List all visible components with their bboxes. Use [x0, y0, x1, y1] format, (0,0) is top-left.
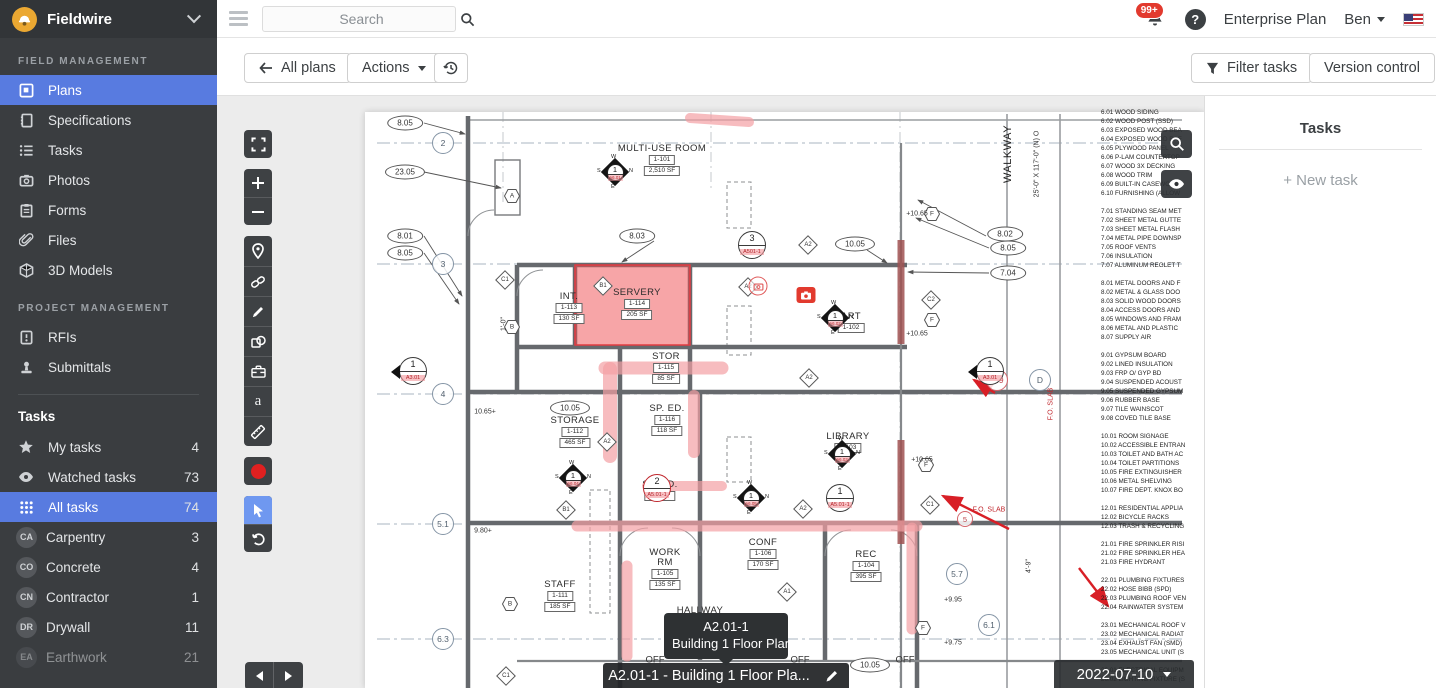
- plan-toolbar: All plans Actions Filter tasks Version c…: [217, 38, 1436, 96]
- text-tool-button[interactable]: a: [244, 386, 272, 416]
- photo-marker-outline-icon[interactable]: [749, 277, 768, 296]
- sidebar-item-forms[interactable]: Forms: [0, 195, 217, 225]
- task-count: 73: [184, 470, 199, 485]
- star-icon: [18, 439, 34, 455]
- category-badge: CN: [16, 587, 37, 608]
- keynote-line: 21.03 FIRE HYDRANT: [1101, 558, 1204, 567]
- keynote-line: 23.01 MECHANICAL ROOF V: [1101, 621, 1204, 630]
- keynote-line: 7.02 SHEET METAL GUTTE: [1101, 216, 1204, 225]
- plan-annotation-text: +10.65: [906, 331, 928, 338]
- task-count: 4: [191, 440, 199, 455]
- keynote-line: 10.02 ACCESSIBLE ENTRAN: [1101, 441, 1204, 450]
- keynote-line: [1101, 270, 1204, 279]
- tooltip-plan-number: A2.01-1: [672, 618, 780, 635]
- logo-row[interactable]: Fieldwire: [0, 0, 217, 38]
- plan-annotation-text: 1'-0": [501, 317, 508, 331]
- plan-tool-stack: a: [244, 130, 272, 563]
- sidebar-item-rfis[interactable]: RFIs: [0, 322, 217, 352]
- toolbox-button[interactable]: [244, 356, 272, 386]
- actions-label: Actions: [362, 60, 410, 76]
- sheet-navigation: [245, 662, 303, 688]
- pen-tool-button[interactable]: [244, 296, 272, 326]
- user-name: Ben: [1344, 11, 1371, 28]
- version-date-label: 2022-07-10: [1077, 666, 1154, 683]
- keynote-line: 12.03 TRASH & RECYCLING: [1101, 522, 1204, 531]
- fullscreen-button[interactable]: [244, 130, 272, 158]
- sidebar-item-label: Earthwork: [46, 650, 107, 665]
- task-count: 4: [191, 560, 199, 575]
- sidebar-item-label: Contractor: [46, 590, 109, 605]
- submittals-icon: [18, 359, 34, 375]
- sidebar-item-label: Carpentry: [46, 530, 105, 545]
- keynote-line: 23.05 MECHANICAL UNIT (S: [1101, 648, 1204, 657]
- all-plans-button[interactable]: All plans: [244, 53, 351, 83]
- task-count: 1: [191, 590, 199, 605]
- tasks-panel-title: Tasks: [1205, 120, 1436, 137]
- keynote-line: [1101, 531, 1204, 540]
- sidebar-item-label: Drywall: [46, 620, 90, 635]
- plan-annotation-text: 4'-9": [1026, 559, 1033, 573]
- keynote-line: [1101, 567, 1204, 576]
- project-management-label: PROJECT MANAGEMENT: [0, 285, 217, 322]
- keynote-line: 9.06 RUBBER BASE: [1101, 396, 1204, 405]
- keynote-line: 12.01 RESIDENTIAL APPLIA: [1101, 504, 1204, 513]
- sidebar-item-plans[interactable]: Plans: [0, 75, 217, 105]
- pin-tool-button[interactable]: [244, 236, 272, 266]
- keynote-line: 8.02 METAL & GLASS DOO: [1101, 288, 1204, 297]
- version-date-dropdown[interactable]: 2022-07-10: [1054, 660, 1194, 688]
- plan-annotation-text: OFF: [896, 655, 915, 666]
- keynote-line: 7.04 METAL PIPE DOWNSP: [1101, 234, 1204, 243]
- 3d-models-icon: [18, 262, 34, 278]
- sidebar-item-all-tasks[interactable]: All tasks 74: [0, 492, 217, 522]
- sidebar-item-label: Files: [48, 233, 77, 248]
- keynote-line: 21.02 FIRE SPRINKLER HEA: [1101, 549, 1204, 558]
- next-sheet-button[interactable]: [274, 662, 303, 688]
- undo-button[interactable]: [244, 524, 272, 552]
- search-plan-button[interactable]: [1161, 130, 1192, 158]
- sidebar-item-label: Photos: [48, 173, 90, 188]
- plan-annotation-text: 25'-0" X 117'-0" (N) O: [1034, 131, 1041, 198]
- photos-icon: [18, 172, 34, 188]
- hamburger-menu-icon[interactable]: [229, 11, 248, 26]
- plan-annotation-text: F.O. SLAB: [973, 507, 1006, 514]
- sidebar: Fieldwire FIELD MANAGEMENT Plans Specifi…: [0, 0, 217, 688]
- plan-annotation-text: +10.65: [911, 457, 933, 464]
- version-history-button[interactable]: [434, 53, 468, 83]
- sidebar-item-label: All tasks: [48, 500, 98, 515]
- tasks-panel-divider: [1219, 149, 1422, 150]
- keynote-line: 8.06 METAL AND PLASTIC: [1101, 324, 1204, 333]
- filter-tasks-label: Filter tasks: [1227, 60, 1297, 76]
- sidebar-item-3d-models[interactable]: 3D Models: [0, 255, 217, 285]
- us-flag-icon[interactable]: [1403, 13, 1424, 26]
- zoom-out-button[interactable]: [244, 197, 272, 225]
- zoom-in-button[interactable]: [244, 169, 272, 197]
- visibility-button[interactable]: [1161, 170, 1192, 198]
- keynote-line: 10.06 METAL SHELVING: [1101, 477, 1204, 486]
- sidebar-item-label: RFIs: [48, 330, 77, 345]
- keynote-line: 23.04 EXHAUST FAN (SMD): [1101, 639, 1204, 648]
- all-plans-label: All plans: [281, 60, 336, 76]
- filter-tasks-button[interactable]: Filter tasks: [1191, 53, 1312, 83]
- tooltip-plan-name: Building 1 Floor Plan: [672, 635, 780, 652]
- plan-view-controls: [1161, 130, 1192, 210]
- sidebar-item-watched-tasks[interactable]: Watched tasks 73: [0, 462, 217, 492]
- select-tool-button[interactable]: [244, 496, 272, 524]
- new-task-button[interactable]: + New task: [1205, 172, 1436, 189]
- top-bar: 99+ ? Enterprise Plan Ben: [217, 0, 1436, 38]
- keynote-line: 21.01 FIRE SPRINKLER RISI: [1101, 540, 1204, 549]
- plan-annotation-text: F.O. SLAB: [1048, 388, 1055, 421]
- keynote-line: [1101, 423, 1204, 432]
- sidebar-item-label: Specifications: [48, 113, 131, 128]
- markup-tools-group: a: [244, 236, 272, 446]
- plan-annotation-text: 10.65+: [474, 409, 496, 416]
- keynote-line: 10.05 FIRE EXTINGUISHER: [1101, 468, 1204, 477]
- tasks-section-label: Tasks: [0, 395, 217, 432]
- keynote-line: 6.02 WOOD POST (SSD): [1101, 117, 1204, 126]
- keynote-line: 10.01 ROOM SIGNAGE: [1101, 432, 1204, 441]
- keynote-line: 7.07 ALUMINUM REGLET T: [1101, 261, 1204, 270]
- measure-tool-button[interactable]: [244, 416, 272, 446]
- task-count: 3: [191, 530, 199, 545]
- sidebar-item-submittals[interactable]: Submittals: [0, 352, 217, 382]
- forms-icon: [18, 202, 34, 218]
- tasks-icon: [18, 142, 34, 158]
- keynote-line: 9.02 LINED INSULATION: [1101, 360, 1204, 369]
- plan-texts-layer: +10.65+10.65+10.6510.65+9.80++9.95+9.751…: [217, 96, 1204, 688]
- keynote-line: 9.07 TILE WAINSCOT: [1101, 405, 1204, 414]
- plan-viewer[interactable]: MULTI-USE ROOM 1-101 2,510 SF INT. 1-113…: [217, 96, 1204, 688]
- keynote-line: 9.01 GYPSUM BOARD: [1101, 351, 1204, 360]
- chevron-down-icon: [418, 66, 426, 71]
- keynote-line: 9.05 SUSPENDED GYPSUM: [1101, 387, 1204, 396]
- keynote-line: 10.03 TOILET AND BATH AC: [1101, 450, 1204, 459]
- plan-annotation-text: +9.75: [944, 640, 962, 647]
- brand-name: Fieldwire: [47, 11, 189, 28]
- keynote-line: 9.03 FRP O/ GYP BD: [1101, 369, 1204, 378]
- keynote-line: 12.02 BICYCLE RACKS: [1101, 513, 1204, 522]
- sidebar-item-tasks[interactable]: Tasks: [0, 135, 217, 165]
- category-badge: EA: [16, 647, 37, 668]
- keynote-line: 10.07 FIRE DEPT. KNOX BO: [1101, 486, 1204, 495]
- fieldwire-logo-icon: [12, 7, 37, 32]
- sidebar-item-contractor[interactable]: CN Contractor 1: [0, 582, 217, 612]
- sidebar-item-label: 3D Models: [48, 263, 113, 278]
- keynote-line: 22.01 PLUMBING FIXTURES: [1101, 576, 1204, 585]
- plan-annotation-text: 9.80+: [474, 528, 492, 535]
- previous-sheet-button[interactable]: [245, 662, 274, 688]
- keynote-line: 7.03 SHEET METAL FLASH: [1101, 225, 1204, 234]
- eye-icon: [18, 469, 34, 485]
- keynote-line: 8.07 SUPPLY AIR: [1101, 333, 1204, 342]
- specifications-icon: [18, 112, 34, 128]
- link-tool-button[interactable]: [244, 266, 272, 296]
- search-box[interactable]: [262, 6, 456, 32]
- chevron-down-icon[interactable]: [187, 9, 201, 23]
- notification-badge: 99+: [1135, 2, 1164, 19]
- chevron-down-icon: [1377, 17, 1385, 22]
- keynote-line: 7.05 ROOF VENTS: [1101, 243, 1204, 252]
- search-input[interactable]: [263, 11, 460, 27]
- task-count: 11: [185, 620, 199, 635]
- sidebar-item-label: Concrete: [46, 560, 101, 575]
- keynote-line: 9.08 COVED TILE BASE: [1101, 414, 1204, 423]
- record-button[interactable]: [244, 457, 272, 485]
- sidebar-item-files[interactable]: Files: [0, 225, 217, 255]
- plans-icon: [18, 82, 34, 98]
- tasks-panel: Tasks + New task: [1204, 96, 1436, 688]
- sidebar-item-label: Plans: [48, 83, 82, 98]
- sidebar-item-label: Submittals: [48, 360, 111, 375]
- plan-title-bar[interactable]: A2.01-1 - Building 1 Floor Pla...: [603, 663, 849, 688]
- plan-annotation-text: WALKWAY: [1002, 125, 1014, 183]
- sidebar-item-label: My tasks: [48, 440, 101, 455]
- plan-title-label: A2.01-1 - Building 1 Floor Pla...: [603, 668, 815, 684]
- version-control-label: Version control: [1324, 60, 1420, 76]
- keynote-line: [1101, 612, 1204, 621]
- plan-annotation-text: +9.95: [944, 597, 962, 604]
- sidebar-item-label: Watched tasks: [48, 470, 136, 485]
- photo-marker-icon[interactable]: [797, 287, 816, 303]
- user-menu[interactable]: Ben: [1344, 11, 1385, 28]
- sidebar-item-my-tasks[interactable]: My tasks 4: [0, 432, 217, 462]
- keynote-line: 8.01 METAL DOORS AND F: [1101, 279, 1204, 288]
- plan-annotation-text: +10.65: [906, 211, 928, 218]
- keynote-line: 22.03 PLUMBING ROOF VEN: [1101, 594, 1204, 603]
- sidebar-item-drywall[interactable]: DR Drywall 11: [0, 612, 217, 642]
- keynote-line: 8.04 ACCESS DOORS AND: [1101, 306, 1204, 315]
- category-badge: DR: [16, 617, 37, 638]
- sidebar-item-label: Tasks: [48, 143, 83, 158]
- keynote-line: 8.03 SOLID WOOD DOORS: [1101, 297, 1204, 306]
- sidebar-item-specifications[interactable]: Specifications: [0, 105, 217, 135]
- keynote-line: 10.04 TOILET PARTITIONS: [1101, 459, 1204, 468]
- notifications-bell-icon[interactable]: 99+: [1145, 8, 1167, 30]
- sidebar-item-carpentry[interactable]: CA Carpentry 3: [0, 522, 217, 552]
- plan-title-tooltip: A2.01-1 Building 1 Floor Plan: [664, 613, 788, 659]
- keynote-line: 23.02 MECHANICAL RADIAT: [1101, 630, 1204, 639]
- task-count: 21: [184, 650, 199, 665]
- sidebar-item-photos[interactable]: Photos: [0, 165, 217, 195]
- help-button[interactable]: ?: [1185, 9, 1206, 30]
- keynote-line: 8.05 WINDOWS AND FRAM: [1101, 315, 1204, 324]
- category-badge: CA: [16, 527, 37, 548]
- keynote-line: [1101, 495, 1204, 504]
- sidebar-item-earthwork[interactable]: EA Earthwork 21: [0, 642, 217, 672]
- task-count: 74: [184, 500, 199, 515]
- enterprise-plan-label: Enterprise Plan: [1224, 11, 1327, 28]
- rfis-icon: [18, 329, 34, 345]
- files-icon: [18, 232, 34, 248]
- keynote-line: 6.01 WOOD SIDING: [1101, 108, 1204, 117]
- select-group: [244, 496, 272, 552]
- keynote-line: [1101, 342, 1204, 351]
- keynote-line: 22.04 RAINWATER SYSTEM: [1101, 603, 1204, 612]
- version-control-button[interactable]: Version control: [1309, 53, 1435, 83]
- chevron-down-icon: [1163, 672, 1171, 677]
- shapes-tool-button[interactable]: [244, 326, 272, 356]
- field-management-label: FIELD MANAGEMENT: [0, 38, 217, 75]
- sidebar-item-concrete[interactable]: CO Concrete 4: [0, 552, 217, 582]
- pencil-icon[interactable]: [815, 663, 849, 688]
- keynote-line: 7.06 INSULATION: [1101, 252, 1204, 261]
- category-badge: CO: [16, 557, 37, 578]
- sidebar-item-label: Forms: [48, 203, 86, 218]
- search-icon[interactable]: [460, 12, 475, 27]
- keynote-line: 9.04 SUSPENDED ACOUST: [1101, 378, 1204, 387]
- actions-button[interactable]: Actions: [347, 53, 441, 83]
- grid-icon: [18, 499, 34, 515]
- zoom-group: [244, 169, 272, 225]
- keynote-line: 22.02 HOSE BIBB (SPD): [1101, 585, 1204, 594]
